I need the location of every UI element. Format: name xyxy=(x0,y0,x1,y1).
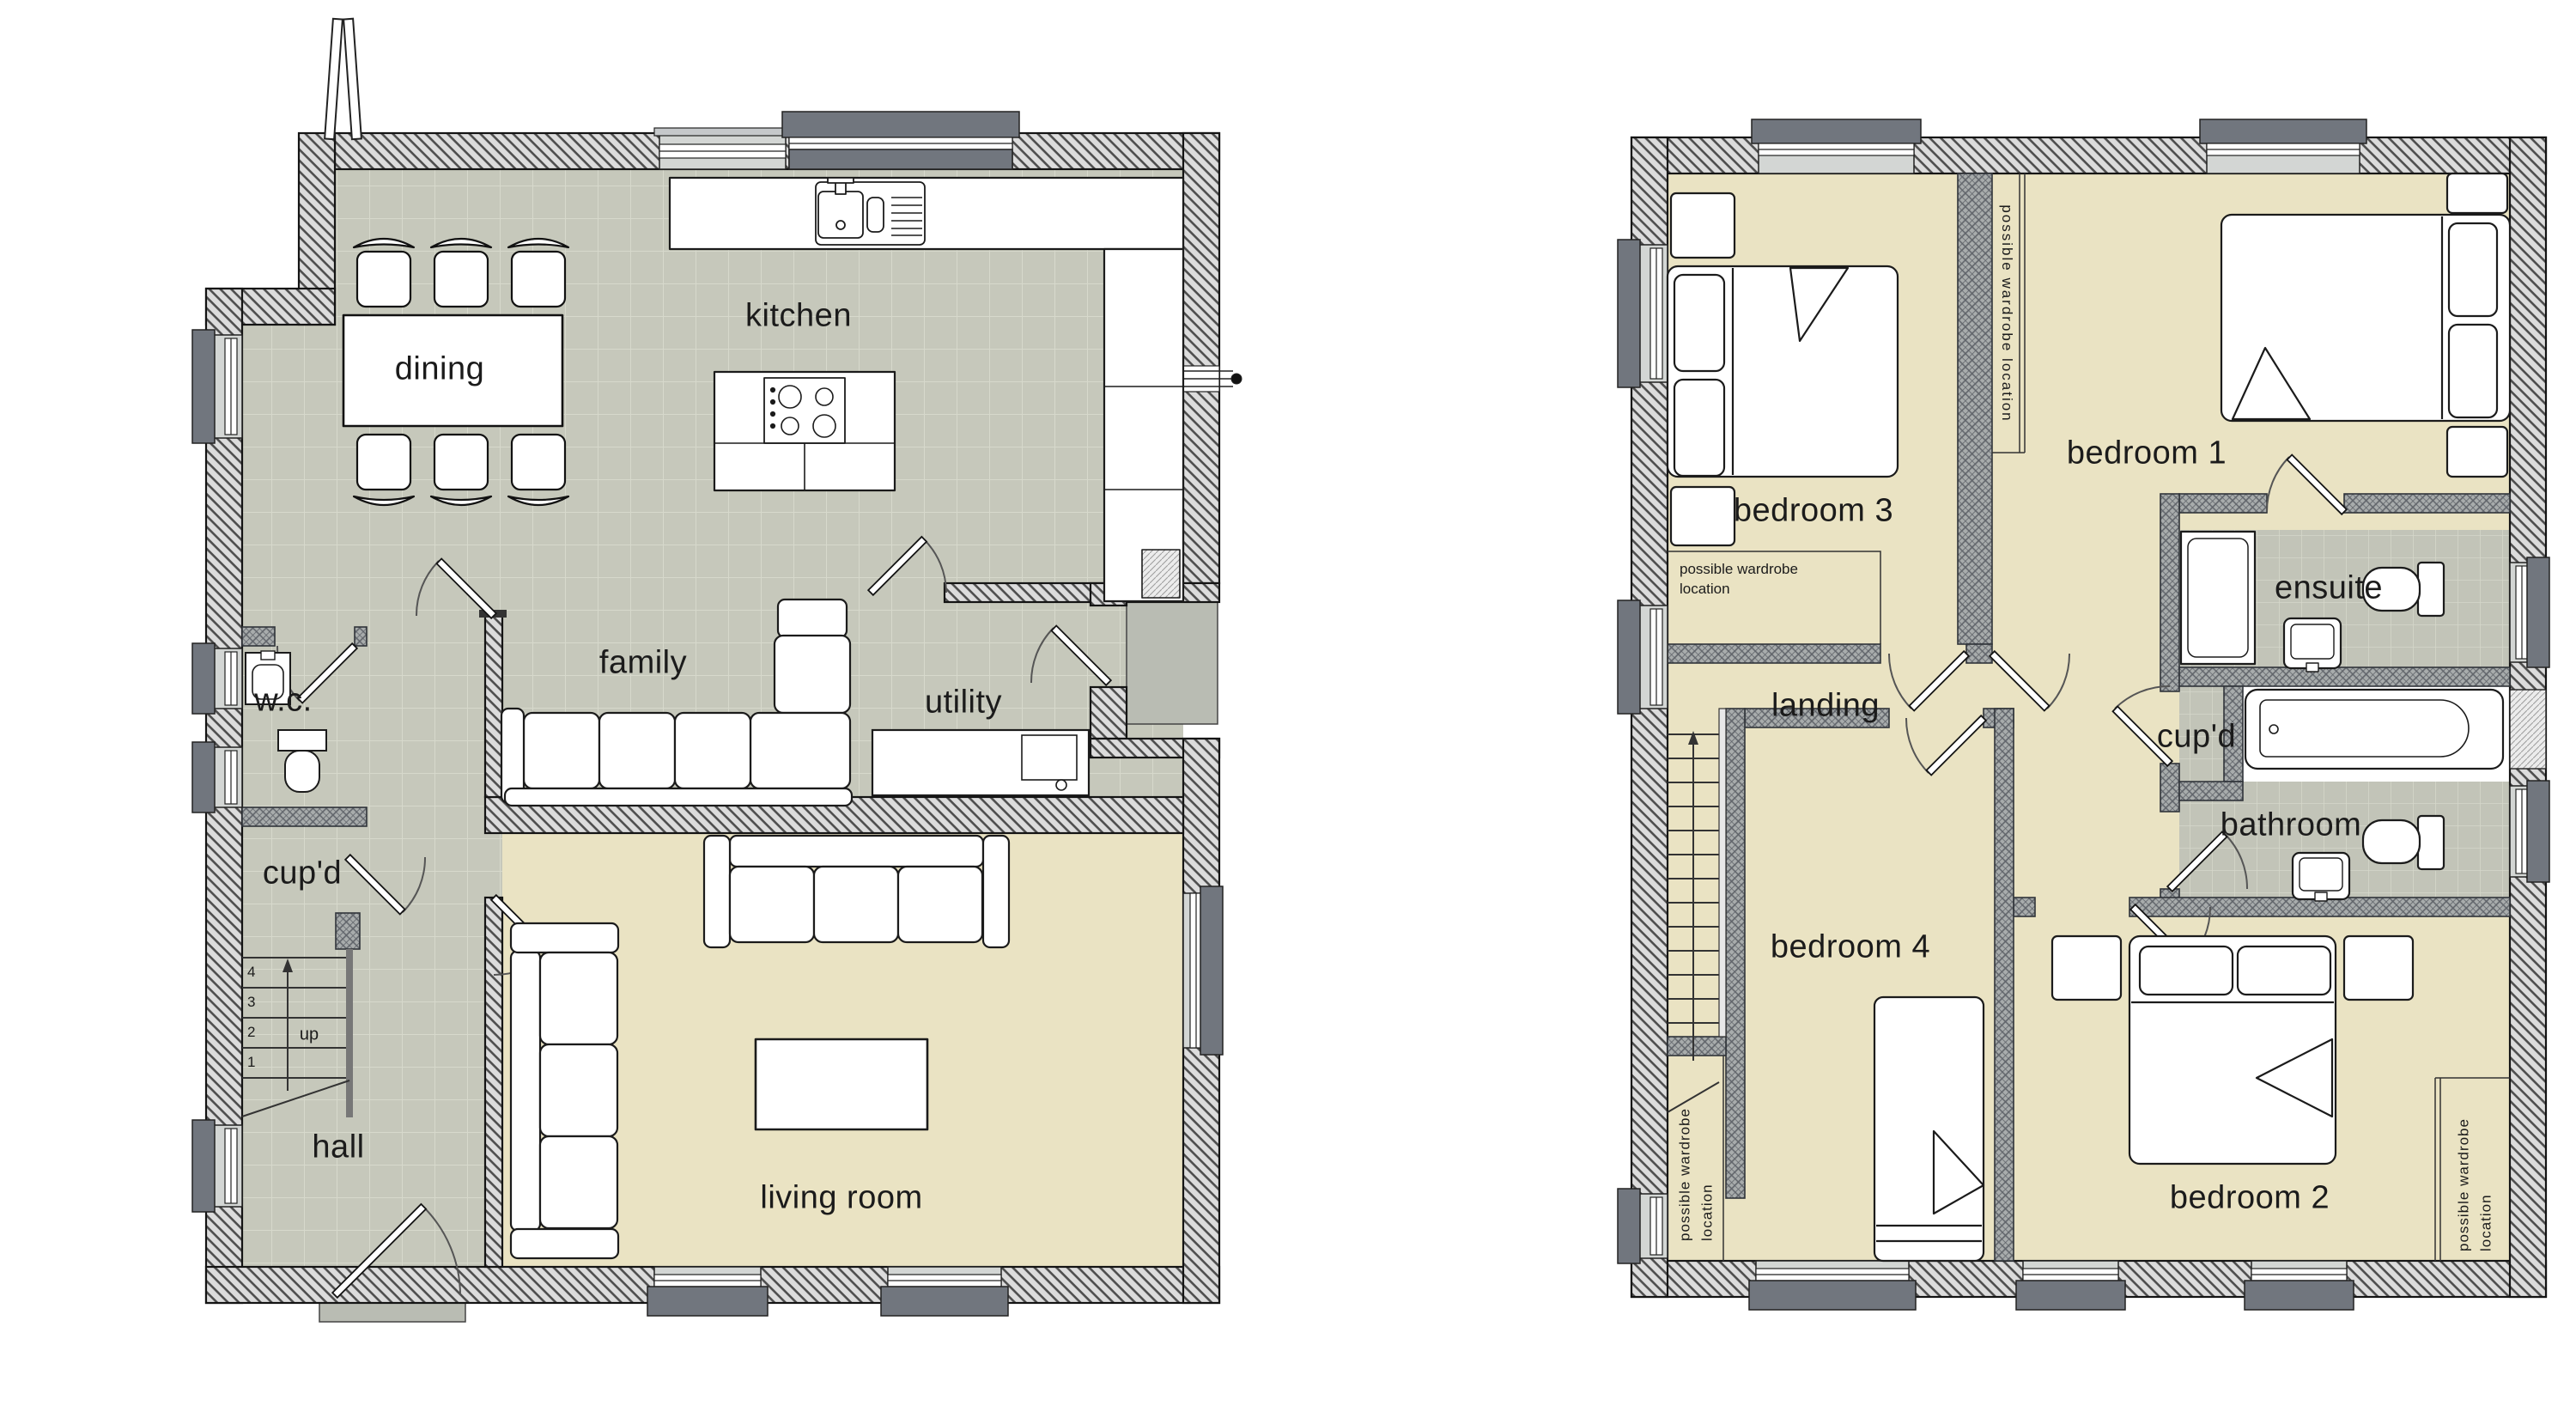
bathtub xyxy=(2245,690,2503,769)
window-bedroom4-bottom xyxy=(1749,1261,1916,1310)
room-label-bedroom-2: bedroom 2 xyxy=(2170,1180,2330,1217)
room-label-dining: dining xyxy=(395,351,484,388)
window-landing-left xyxy=(1618,600,1668,714)
window-bedroom4-left xyxy=(1618,1189,1668,1263)
window-bedroom3-left xyxy=(1618,240,1668,387)
window-bath-frosted xyxy=(2510,690,2546,769)
bathroom-toilet xyxy=(2363,816,2444,869)
stair-step-4: 4 xyxy=(247,964,255,981)
stair-banister-wall-ff xyxy=(1719,709,1726,1037)
wc-toilet xyxy=(278,730,326,792)
room-label-utility: utility xyxy=(925,685,1002,721)
room-label-bathroom: bathroom xyxy=(2221,807,2362,844)
utility-counter xyxy=(872,730,1089,795)
room-label-living-room: living room xyxy=(760,1180,922,1217)
window-bedroom2-bottom-b xyxy=(2245,1261,2354,1310)
first-floor-plan xyxy=(1618,119,2549,1310)
wardrobe-note-bedroom3: possible wardrobe location xyxy=(1680,560,1851,599)
window-dining-top xyxy=(654,128,791,169)
front-porch-slab xyxy=(319,1303,465,1322)
room-label-family: family xyxy=(599,645,687,682)
ensuite-shower xyxy=(2181,532,2255,664)
kitchen-vent xyxy=(1176,366,1242,392)
bathroom-basin xyxy=(2293,853,2349,901)
window-living-right xyxy=(1183,886,1223,1055)
window-bedroom3-top xyxy=(1752,119,1921,173)
stair-step-3: 3 xyxy=(247,994,255,1011)
room-label-bedroom-4: bedroom 4 xyxy=(1771,929,1930,966)
window-wc-left-a xyxy=(192,643,242,714)
wardrobe-note-bedroom2: possible wardrobe location xyxy=(2453,1088,2497,1251)
window-bedroom1-top xyxy=(2200,119,2366,173)
stair-step-1: 1 xyxy=(247,1054,255,1071)
window-dining-left xyxy=(192,330,242,443)
window-bathroom-right xyxy=(2510,781,2549,882)
ensuite-basin xyxy=(2284,618,2341,672)
room-label-landing: landing xyxy=(1771,688,1880,725)
room-label-cupboard-ff: cup'd xyxy=(2157,719,2236,756)
kitchen-sink xyxy=(816,178,925,245)
stairs-up-label: up xyxy=(300,1026,319,1045)
floorplan-page: dining kitchen family utility w.c. cup'd… xyxy=(0,0,2576,1412)
window-kitchen-top xyxy=(782,112,1019,169)
window-living-bottom-a xyxy=(647,1267,768,1316)
stair-banister-wall xyxy=(346,949,353,1117)
ground-floor-plan xyxy=(192,19,1242,1322)
coffee-table xyxy=(756,1039,927,1129)
flue-pipes xyxy=(325,19,361,139)
room-label-ensuite: ensuite xyxy=(2275,570,2383,607)
utility-porch-slab xyxy=(1127,588,1218,724)
window-ensuite-right xyxy=(2510,557,2549,667)
window-bedroom2-bottom-a xyxy=(2016,1261,2125,1310)
wardrobe-note-bedroom4: possible wardrobe location xyxy=(1674,1078,1718,1241)
window-hall-left xyxy=(192,1120,242,1212)
window-wc-left-b xyxy=(192,742,242,813)
room-label-bedroom-1: bedroom 1 xyxy=(2067,435,2227,472)
stair-step-2: 2 xyxy=(247,1024,255,1041)
room-label-cupboard-gf: cup'd xyxy=(263,855,342,892)
window-living-bottom-b xyxy=(881,1267,1008,1316)
kitchen-island xyxy=(714,372,895,490)
bedroom4-bed xyxy=(1874,997,1984,1261)
wardrobe-note-bedroom1: possible wardrobe location xyxy=(1998,204,2015,422)
room-label-wc: w.c. xyxy=(254,683,312,720)
sofa-top xyxy=(704,836,1009,947)
sofa-left xyxy=(511,923,618,1258)
room-label-bedroom-3: bedroom 3 xyxy=(1734,493,1893,530)
room-label-hall: hall xyxy=(312,1129,364,1166)
room-label-kitchen: kitchen xyxy=(745,298,852,335)
